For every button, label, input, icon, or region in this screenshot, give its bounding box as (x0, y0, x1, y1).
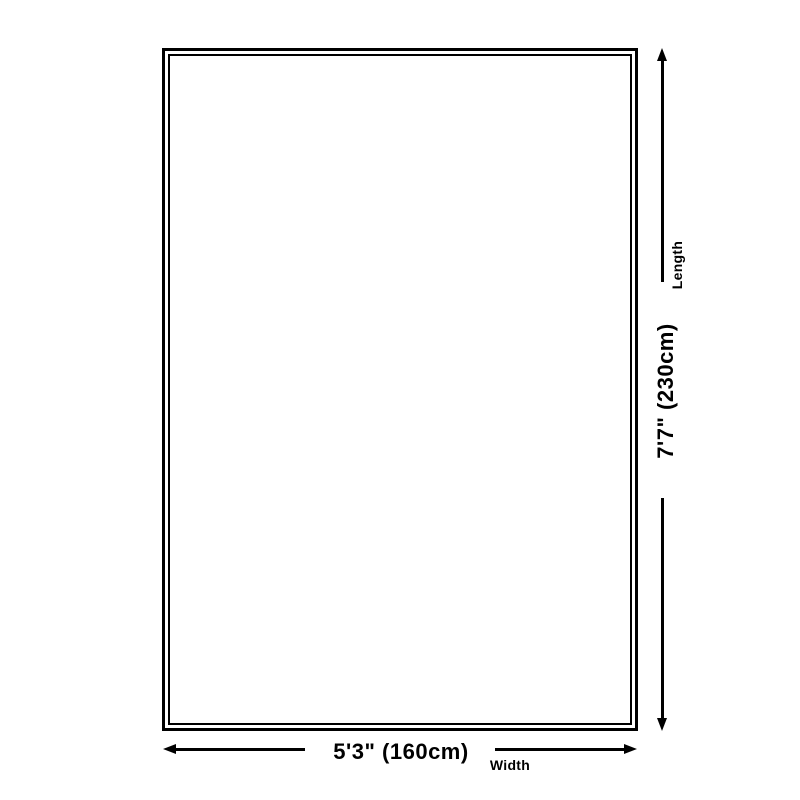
length-caption: Length (669, 241, 685, 289)
rug-outline (162, 48, 638, 731)
arrow-right-icon (624, 744, 637, 754)
length-dimension-line-top (661, 59, 664, 282)
width-value: 5'3" (160cm) (333, 739, 468, 765)
rug-size-diagram: Length 7'7" (230cm) 5'3" (160cm) Width (0, 0, 800, 800)
rug-inner-border (168, 54, 632, 725)
width-caption: Width (490, 757, 530, 773)
width-dimension-line-left (174, 748, 305, 751)
width-dimension-line-right (495, 748, 625, 751)
length-dimension-line-bottom (661, 498, 664, 722)
length-value: 7'7" (230cm) (653, 323, 679, 458)
arrow-down-icon (657, 718, 667, 731)
